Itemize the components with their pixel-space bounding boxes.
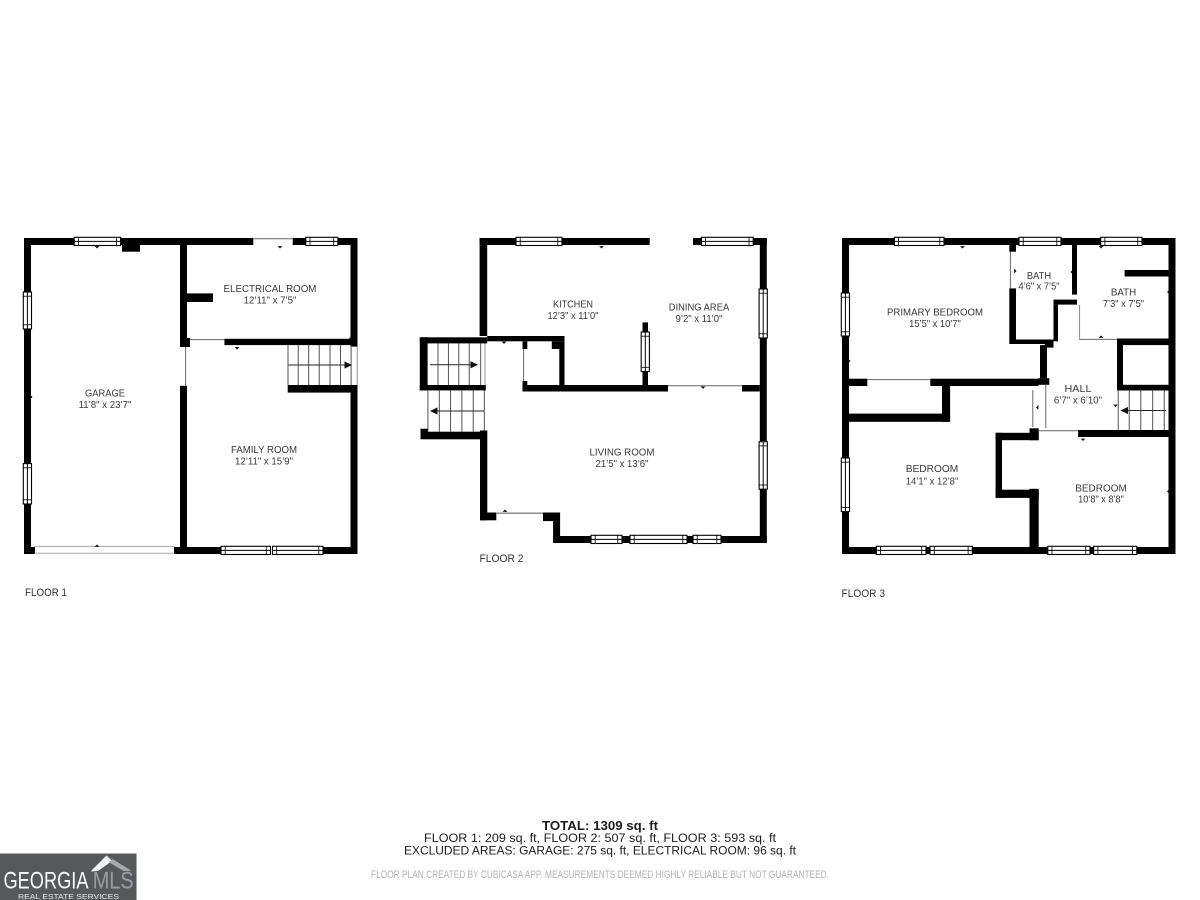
svg-text:6’7" x 6’10": 6’7" x 6’10": [1054, 396, 1103, 407]
svg-text:12’11" x 7’5": 12’11" x 7’5": [244, 296, 297, 307]
svg-text:BEDROOM: BEDROOM: [906, 464, 959, 475]
svg-text:BEDROOM: BEDROOM: [1075, 484, 1127, 495]
svg-text:MLS: MLS: [93, 868, 134, 895]
svg-text:9’2" x 11’0": 9’2" x 11’0": [676, 314, 723, 325]
svg-text:12’11" x 15’9": 12’11" x 15’9": [235, 456, 293, 467]
svg-text:FLOOR 3: FLOOR 3: [842, 588, 886, 600]
svg-text:21’5" x 13’6": 21’5" x 13’6": [596, 459, 649, 470]
svg-text:EXCLUDED AREAS: GARAGE: 275 sq: EXCLUDED AREAS: GARAGE: 275 sq. ft, ELEC…: [404, 844, 797, 858]
svg-text:10’8" x 8’8": 10’8" x 8’8": [1078, 494, 1124, 505]
svg-text:LIVING ROOM: LIVING ROOM: [590, 447, 655, 458]
svg-text:KITCHEN: KITCHEN: [553, 299, 593, 310]
svg-text:12’3" x 11’0": 12’3" x 11’0": [548, 311, 599, 322]
svg-text:11’8" x 23’7": 11’8" x 23’7": [79, 400, 132, 411]
svg-text:FLOOR PLAN CREATED BY CUBICASA: FLOOR PLAN CREATED BY CUBICASA APP. MEAS…: [371, 869, 829, 881]
svg-text:FAMILY ROOM: FAMILY ROOM: [231, 445, 297, 456]
svg-text:GARAGE: GARAGE: [85, 389, 125, 400]
svg-text:FLOOR 1: FLOOR 1: [25, 587, 67, 599]
svg-text:15’5" x 10’7": 15’5" x 10’7": [909, 319, 961, 330]
svg-text:DINING AREA: DINING AREA: [669, 302, 730, 313]
svg-text:4’6" x 7’5": 4’6" x 7’5": [1018, 281, 1059, 292]
svg-text:14’1" x 12’8": 14’1" x 12’8": [906, 477, 959, 488]
svg-text:7’3" x 7’5": 7’3" x 7’5": [1103, 299, 1145, 310]
svg-text:GEORGIA: GEORGIA: [4, 868, 89, 895]
svg-text:BATH: BATH: [1111, 287, 1136, 298]
svg-text:FLOOR 2: FLOOR 2: [480, 553, 524, 565]
svg-text:PRIMARY BEDROOM: PRIMARY BEDROOM: [887, 307, 983, 318]
svg-text:HALL: HALL: [1065, 384, 1092, 395]
svg-text:REAL ESTATE SERVICES: REAL ESTATE SERVICES: [18, 894, 119, 900]
svg-text:ELECTRICAL ROOM: ELECTRICAL ROOM: [224, 284, 317, 295]
